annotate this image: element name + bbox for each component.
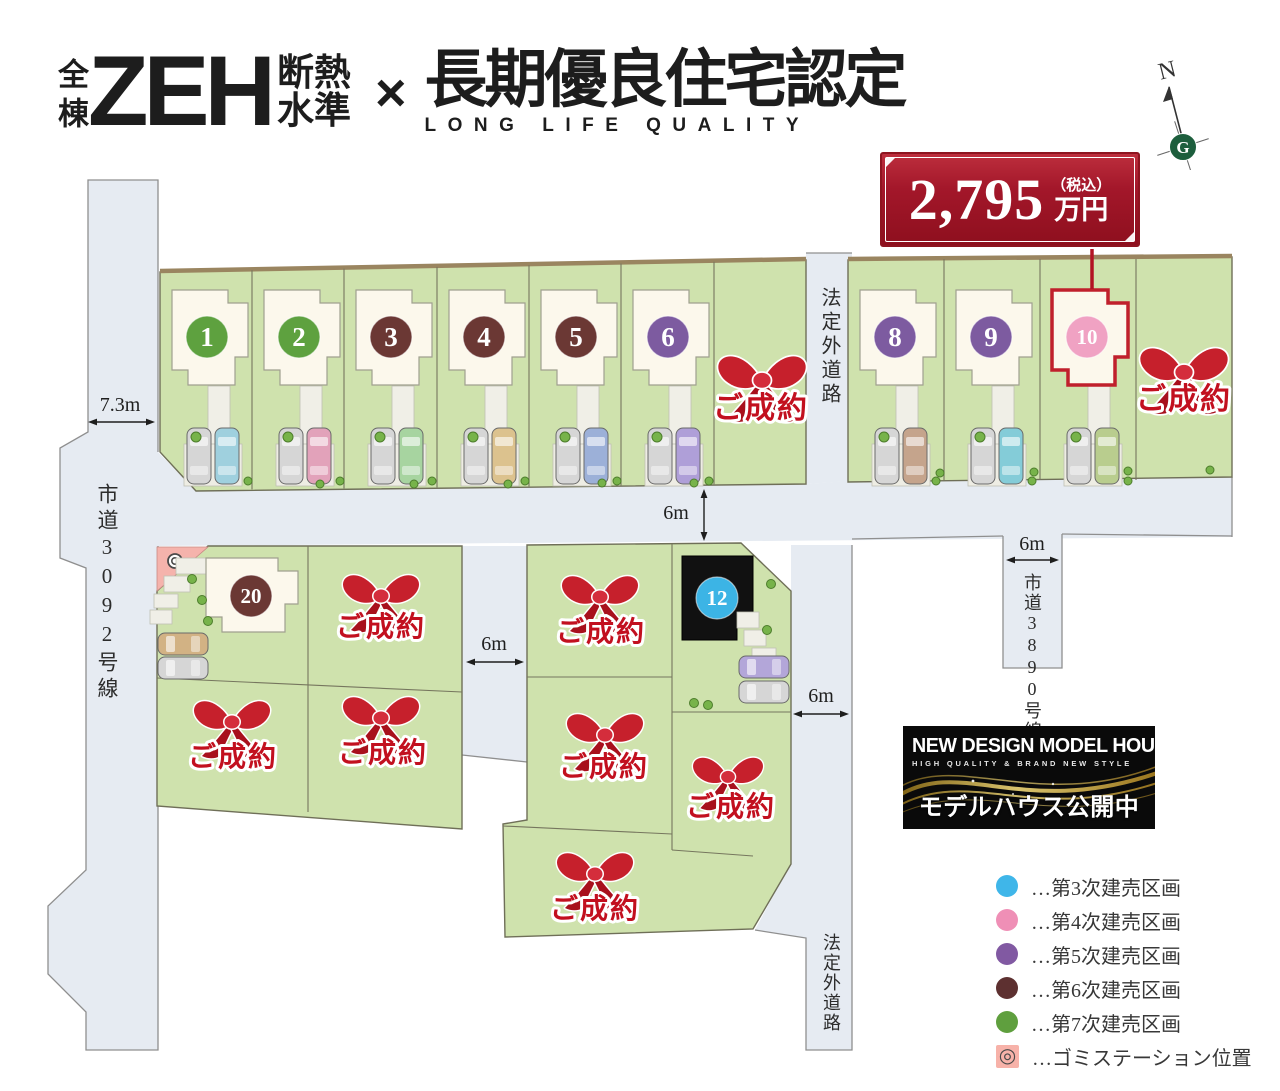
car [215,428,239,484]
road-label-east-branch: 市道3890号線 [1022,573,1042,741]
banner-title: NEW DESIGN MODEL HOUSE [912,734,1137,758]
car-window [747,684,756,700]
tree-icon [975,432,985,442]
legend-color-dot [996,977,1018,999]
compass-icon: N G [1135,55,1225,170]
legend-item: …第7次建売区画 [996,1005,1252,1039]
car-window [559,466,577,475]
car [158,657,208,679]
road-label-north-branch: 法定外道路 [818,287,841,407]
car-window [191,636,200,652]
lot-number: 9 [984,322,998,352]
lot-number: 8 [888,322,902,352]
car-window [587,466,605,475]
header-all-buildings-label: 全棟 [55,58,86,144]
tree-icon [428,477,436,485]
legend-label: …第6次建売区画 [1031,974,1181,1003]
car-window [191,660,200,676]
legend-color-dot [996,1011,1018,1033]
price-unit-block: （税込） 万円 [1051,177,1111,225]
legend-color-dot [996,909,1018,931]
car-window [218,466,236,475]
header: 全棟 ZEH 断熱 水準 × 長期優良住宅認定 LONG LIFE QUALIT… [55,50,905,144]
car-window [467,466,485,475]
tree-icon [283,432,293,442]
tree-icon [705,477,713,485]
car-window [374,466,392,475]
car-window [495,466,513,475]
lot-number: 1 [200,322,214,352]
tree-icon [652,432,662,442]
driveway [164,576,190,592]
tree-icon [879,432,889,442]
tree-icon [375,432,385,442]
car-window [402,437,420,446]
tree-icon [1030,468,1038,476]
tree-icon [1071,432,1081,442]
legend-label: …第5次建売区画 [1031,940,1181,969]
lot-number: 6 [661,322,675,352]
lot-number: 10 [1077,325,1098,349]
legend-item: …第5次建売区画 [996,937,1252,971]
tree-icon [560,432,570,442]
car-window [1098,466,1116,475]
header-insulation-note: 断熱 水準 [277,54,351,131]
sold-label: ご成約 [550,892,640,924]
car [492,428,516,484]
tree-icon [198,596,207,605]
tree-icon [932,477,940,485]
gomi-station-legend-icon: ◎ [996,1045,1019,1068]
tree-icon [936,469,944,477]
car-window [166,660,175,676]
car-window [495,437,513,446]
measure-label: 6m [1019,533,1045,555]
car-window [1070,466,1088,475]
car-window [651,466,669,475]
legend-item: …第3次建売区画 [996,869,1252,903]
model-house-banner: NEW DESIGN MODEL HOUSE HIGH QUALITY & BR… [903,726,1155,829]
car-window [310,466,328,475]
car-window [878,466,896,475]
tree-icon [244,477,252,485]
header-insulation-line2: 水準 [277,92,351,130]
svg-text:G: G [1176,138,1189,157]
header-title-block: 長期優良住宅認定 LONG LIFE QUALITY [425,50,905,137]
tree-icon [316,480,324,488]
car [584,428,608,484]
car [1095,428,1119,484]
road-label-west: 市道3092号線 [95,483,119,703]
tree-icon [763,626,772,635]
price-badge-corner-fold [1125,232,1134,241]
car-window [282,466,300,475]
compass-north-label: N [1156,56,1179,85]
tree-icon [336,477,344,485]
car-window [772,659,781,675]
lot-number: 12 [707,586,728,610]
car [739,681,789,703]
car-window [218,437,236,446]
driveway [154,594,178,608]
car-window [747,659,756,675]
legend-label: …第4次建売区画 [1031,906,1181,935]
sold-label: ご成約 [713,391,809,425]
lot-number: 3 [384,322,398,352]
car-window [906,437,924,446]
header-cross-mark: × [375,66,407,120]
fence-line [848,256,1232,259]
legend-label: …第3次建売区画 [1031,872,1181,901]
car-window [166,636,175,652]
legend-item: ◎…ゴミステーション位置 [996,1039,1252,1073]
legend-item: …第4次建売区画 [996,903,1252,937]
legend-label: …第7次建売区画 [1031,1008,1181,1037]
driveway [150,610,172,624]
measure-label: 6m [808,685,834,707]
car [739,656,789,678]
tree-icon [410,480,418,488]
measure-label: 7.3m [100,394,141,416]
banner-subtitle: HIGH QUALITY & BRAND NEW STYLE [912,759,1146,768]
lot-number: 5 [569,322,583,352]
sold-label: ご成約 [1136,382,1232,416]
header-insulation-line1: 断熱 [277,54,351,92]
car-window [1002,466,1020,475]
sold-label: ご成約 [188,740,278,772]
price-badge: 2,795 （税込） 万円 [880,152,1140,247]
tree-icon [1206,466,1214,474]
header-zeh-label: ZEH [88,50,271,131]
sold-label: ご成約 [336,610,426,642]
tree-icon [690,699,699,708]
tree-icon [598,479,606,487]
header-subtitle: LONG LIFE QUALITY [425,115,905,137]
car [399,428,423,484]
price-tax-note: （税込） [1051,177,1111,194]
price-badge-corner-fold [886,158,895,167]
road-label-south-branch: 法定外道路 [821,933,841,1033]
sold-label: ご成約 [338,736,428,768]
legend-item: …第6次建売区画 [996,971,1252,1005]
car-window [402,466,420,475]
header-title: 長期優良住宅認定 [425,50,905,112]
tree-icon [204,617,213,626]
car-window [772,684,781,700]
car-window [587,437,605,446]
driveway [737,612,759,628]
tree-icon [767,580,776,589]
sold-label: ご成約 [559,750,649,782]
tree-icon [188,575,197,584]
measure-label: 6m [481,633,507,655]
driveway [176,558,206,574]
car [676,428,700,484]
lot-number: 20 [241,584,262,608]
tree-icon [468,432,478,442]
site-plan-page: 12345689102012ご成約ご成約ご成約ご成約ご成約ご成約ご成約ご成約ご成… [0,0,1280,1091]
legend-color-dot [996,875,1018,897]
car [903,428,927,484]
car-window [1098,437,1116,446]
car-window [679,466,697,475]
car-window [310,437,328,446]
tree-icon [690,479,698,487]
car [307,428,331,484]
tree-icon [1028,477,1036,485]
measure-label: 6m [663,502,689,524]
tree-icon [1124,467,1132,475]
tree-icon [613,477,621,485]
car-window [190,466,208,475]
car [999,428,1023,484]
legend-color-dot [996,943,1018,965]
car [158,633,208,655]
tree-icon [1124,477,1132,485]
car-window [906,466,924,475]
tree-icon [704,701,713,710]
car-window [1002,437,1020,446]
price-amount: 2,795 [909,171,1045,229]
banner-caption: モデルハウス公開中 [903,787,1155,822]
lot-number: 2 [292,322,306,352]
lot-number: 4 [477,322,491,352]
sold-label: ご成約 [686,790,776,822]
tree-icon [191,432,201,442]
car-window [679,437,697,446]
tree-icon [504,480,512,488]
car-window [974,466,992,475]
price-unit: 万円 [1054,195,1108,226]
legend-label: …ゴミステーション位置 [1032,1042,1252,1071]
sold-label: ご成約 [556,615,646,647]
legend: …第3次建売区画…第4次建売区画…第5次建売区画…第6次建売区画…第7次建売区画… [996,869,1252,1073]
tree-icon [521,477,529,485]
